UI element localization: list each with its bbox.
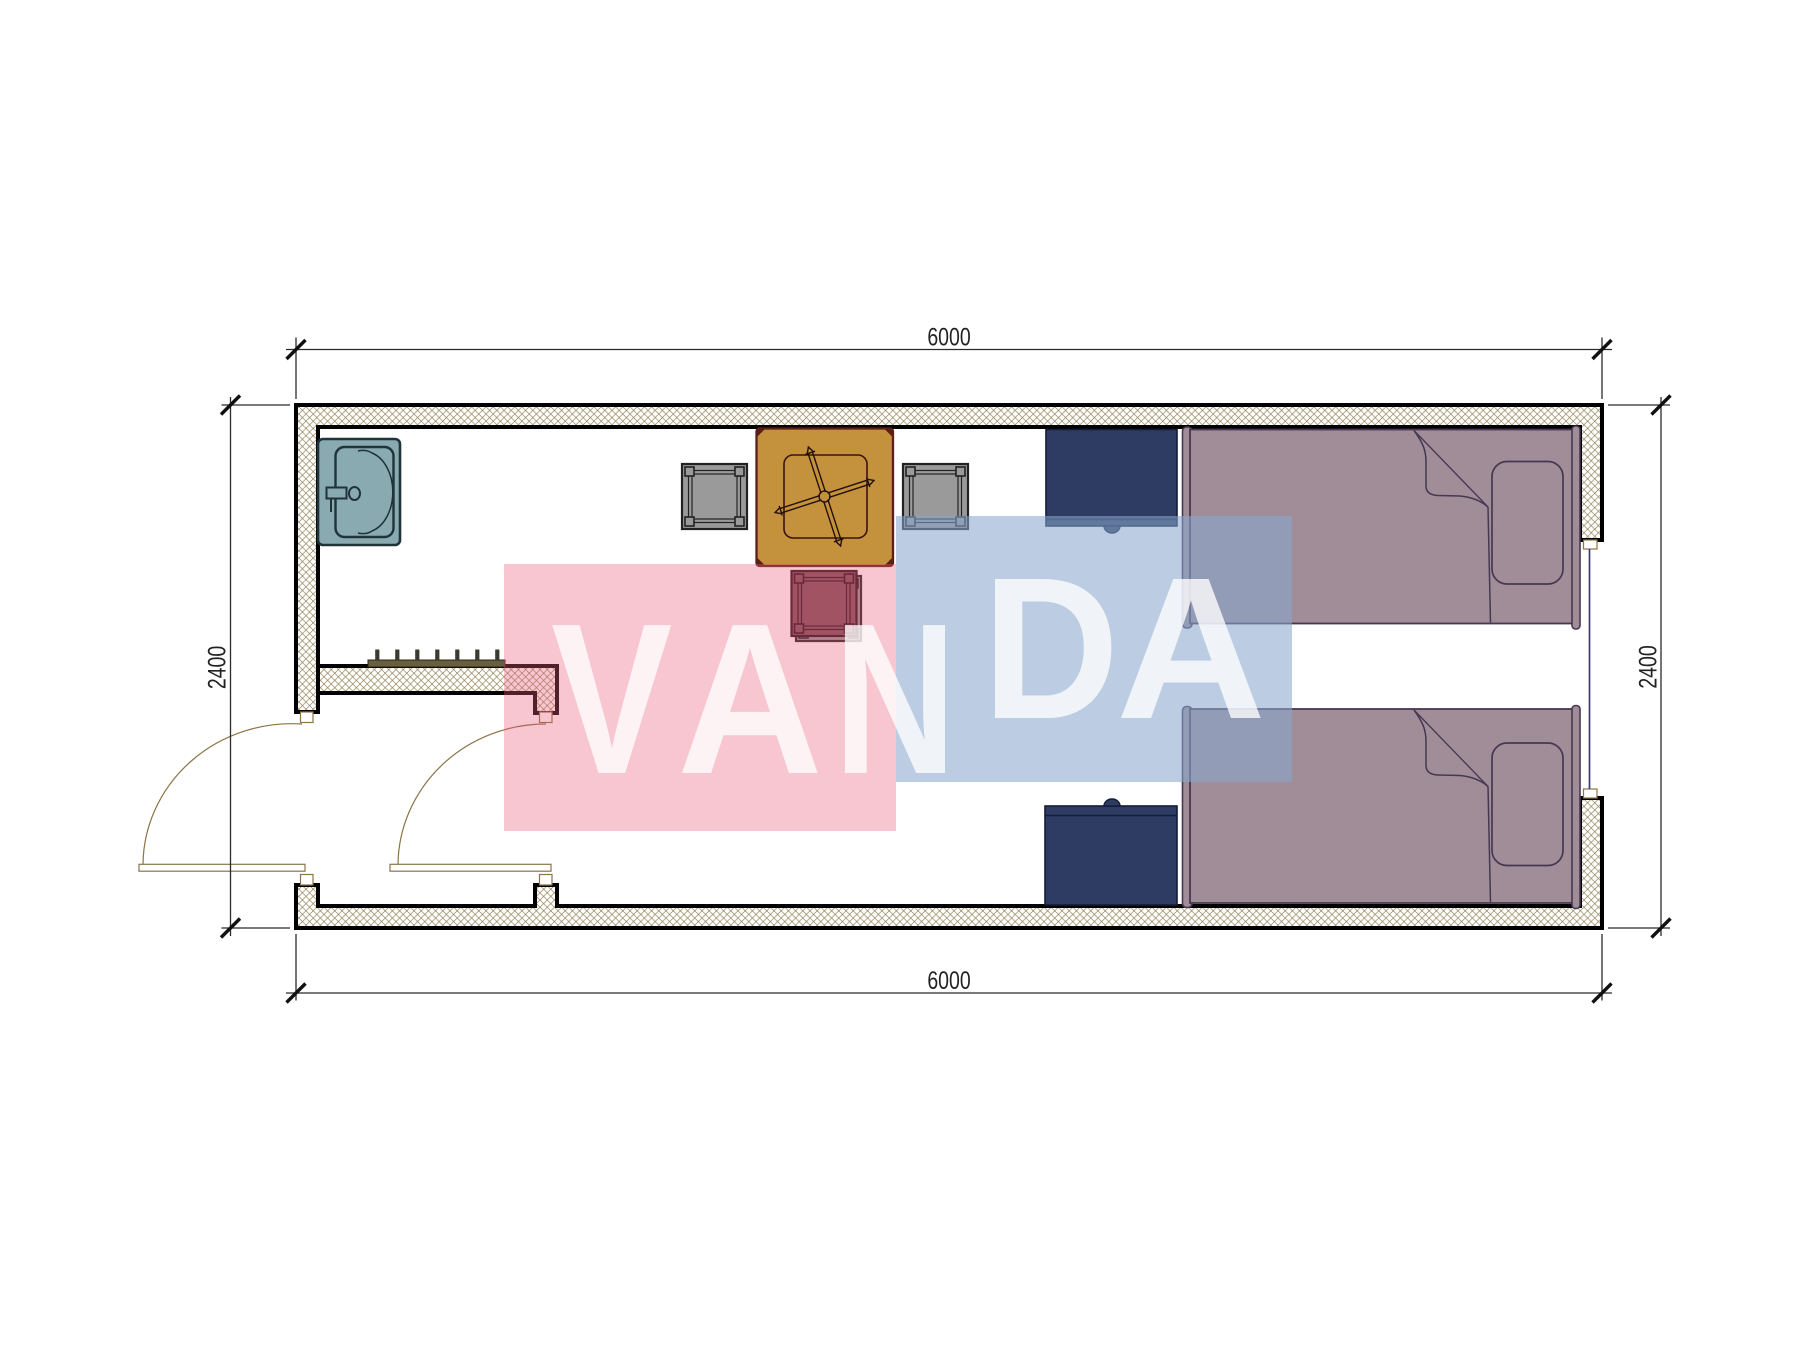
svg-text:D: D bbox=[982, 536, 1119, 762]
svg-text:6000: 6000 bbox=[927, 967, 970, 995]
svg-text:N: N bbox=[834, 579, 957, 820]
svg-text:A: A bbox=[1116, 536, 1266, 762]
svg-text:V: V bbox=[551, 580, 672, 820]
svg-text:2400: 2400 bbox=[203, 646, 231, 689]
svg-text:2400: 2400 bbox=[1634, 645, 1662, 688]
svg-text:A: A bbox=[677, 579, 823, 819]
svg-text:6000: 6000 bbox=[927, 323, 970, 351]
